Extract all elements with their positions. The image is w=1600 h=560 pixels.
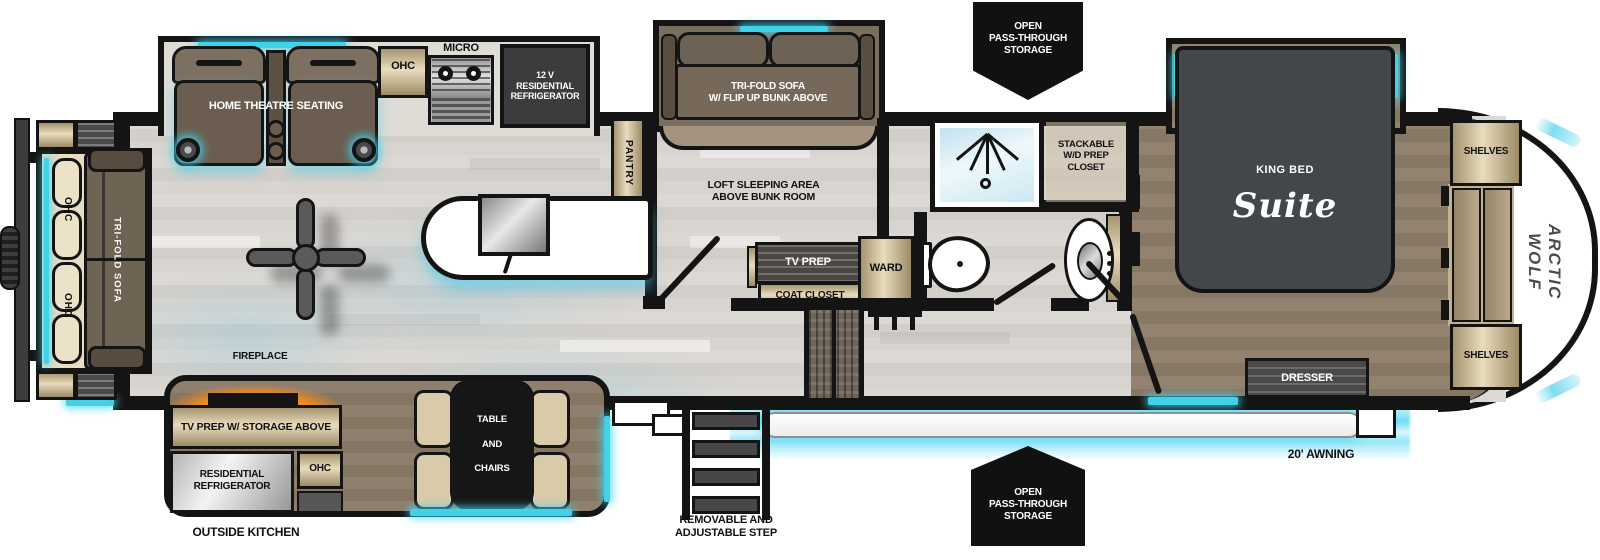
spare-tire <box>0 226 20 290</box>
cup-holder <box>267 120 285 138</box>
dinette-chair <box>530 390 570 448</box>
outside-kitchen-title: OUTSIDE KITCHEN <box>178 524 314 540</box>
dinette-table-label: TABLE AND CHAIRS <box>450 398 534 492</box>
bunk-bath-wall <box>877 118 889 238</box>
front-shelves-bottom-label: SHELVES <box>1450 346 1522 366</box>
tv-prep-label: TV PREP <box>755 252 861 272</box>
sofa-armrest-top <box>88 148 146 172</box>
outside-refrigerator-label: RESIDENTIAL REFRIGERATOR <box>170 463 294 499</box>
awning-tube <box>762 412 1362 438</box>
rear-sofa-label: TRI-FOLD SOFA <box>104 192 130 328</box>
oven-section <box>432 98 490 122</box>
bunk-slide-platform <box>659 126 879 150</box>
loft-label: LOFT SLEEPING AREA ABOVE BUNK ROOM <box>686 176 841 206</box>
sofa-armrest-bottom <box>88 346 146 370</box>
front-closet-door <box>1452 188 1481 322</box>
floor-streak <box>560 340 710 352</box>
island-sink <box>478 194 550 256</box>
rear-slide-mech-bottom <box>75 370 117 400</box>
burner <box>466 66 481 81</box>
faucet-dot <box>1107 271 1112 276</box>
rv-floorplan: OPEN PASS-THROUGH STORAGE OPEN PASS-THRO… <box>0 0 1600 560</box>
closet-door-dash <box>1131 175 1140 209</box>
bath-bottom-wall-seg1 <box>930 298 994 311</box>
step-label: REMOVABLE AND ADJUSTABLE STEP <box>655 511 797 543</box>
railing-post <box>892 317 897 330</box>
rear-slide-corner-top <box>36 120 76 150</box>
pass-through-storage-badge-bottom: OPEN PASS-THROUGH STORAGE <box>971 446 1085 546</box>
fan-blade <box>296 198 315 250</box>
rear-slide-corner-bottom <box>36 370 76 400</box>
toilet-dot <box>957 261 963 267</box>
recliner-back-slit <box>196 60 242 66</box>
fan-blade <box>246 248 298 267</box>
stairs-divider <box>832 310 836 398</box>
fan-hub <box>292 244 320 272</box>
pass-through-storage-top-label: OPEN PASS-THROUGH STORAGE <box>973 8 1083 70</box>
railing-post <box>874 317 879 330</box>
slide-window-right <box>604 416 610 502</box>
stair-railing <box>868 310 922 317</box>
recliner-back-slit <box>310 60 356 66</box>
brand-logo: ARCTIC WOLF <box>1512 194 1576 330</box>
front-shelves-top-label: SHELVES <box>1450 142 1522 162</box>
cup-holder <box>267 142 285 160</box>
bunk-sofa-back <box>677 32 769 68</box>
front-closet-door <box>1483 188 1512 322</box>
bunk-sofa-arm-right <box>859 34 875 120</box>
removable-step <box>682 402 770 520</box>
pantry-label: PANTRY <box>613 122 643 204</box>
step-tread <box>692 412 760 430</box>
wardrobe-label: WARD <box>858 258 914 278</box>
recliner-footrest-left <box>176 138 200 162</box>
outside-counter <box>297 491 343 513</box>
fireplace-label: FIREPLACE <box>200 350 320 364</box>
burner <box>438 66 453 81</box>
faucet-dot <box>1107 261 1112 266</box>
rear-slide-window <box>44 158 49 364</box>
faucet-dot <box>1107 251 1112 256</box>
rear-ohc-upper-label: OHC <box>53 186 81 234</box>
kitchen-ohc-label: OHC <box>378 58 428 74</box>
kitchen-refrigerator-label: 12 V RESIDENTIAL REFRIGERATOR <box>500 52 590 120</box>
rear-slide-mech-top <box>75 120 117 150</box>
awning-label: 20' AWNING <box>1266 446 1376 462</box>
railing-post <box>910 317 915 330</box>
floor-streak <box>470 158 600 170</box>
closet-door-dash <box>1131 232 1140 266</box>
dinette-chair <box>414 390 454 448</box>
bunk-sofa-back <box>769 32 861 68</box>
king-bed-label: KING BED <box>1235 162 1335 178</box>
outside-tv-prep-label: TV PREP W/ STORAGE ABOVE <box>172 417 340 437</box>
floor-streak <box>880 332 1010 344</box>
floor-streak <box>150 236 260 248</box>
step-tread <box>692 440 760 458</box>
step-tread <box>692 468 760 486</box>
floor-streak <box>330 314 480 326</box>
pass-through-storage-badge-top: OPEN PASS-THROUGH STORAGE <box>973 2 1083 100</box>
micro-label: MICRO <box>426 42 496 55</box>
slide-window-bottom <box>410 509 572 516</box>
fan-blade <box>314 248 366 267</box>
rear-ohc-lower-label: OHC <box>53 282 81 330</box>
bunk-sofa-label: TRI-FOLD SOFA W/ FLIP UP BUNK ABOVE <box>683 78 853 108</box>
fan-blade <box>296 268 315 320</box>
shower-spray <box>986 134 989 174</box>
pass-through-storage-bottom-label: OPEN PASS-THROUGH STORAGE <box>971 474 1085 536</box>
closet-track-dash <box>1441 300 1449 320</box>
shower-drain <box>980 178 991 189</box>
dresser-label: DRESSER <box>1245 368 1369 388</box>
closet-track-dash <box>1441 186 1449 206</box>
window-bottom-bedroom <box>1148 397 1238 405</box>
closet-track-dash <box>1441 248 1449 268</box>
dinette-chair <box>414 452 454 510</box>
dinette-chair <box>530 452 570 510</box>
recliner-footrest-right <box>352 138 376 162</box>
home-theatre-label: HOME THEATRE SEATING <box>186 98 366 114</box>
suite-logo: Suite <box>1223 180 1347 232</box>
wd-closet-label: STACKABLE W/D PREP CLOSET <box>1040 128 1132 184</box>
step-bracket <box>652 414 686 436</box>
outside-ohc-label: OHC <box>297 459 343 479</box>
